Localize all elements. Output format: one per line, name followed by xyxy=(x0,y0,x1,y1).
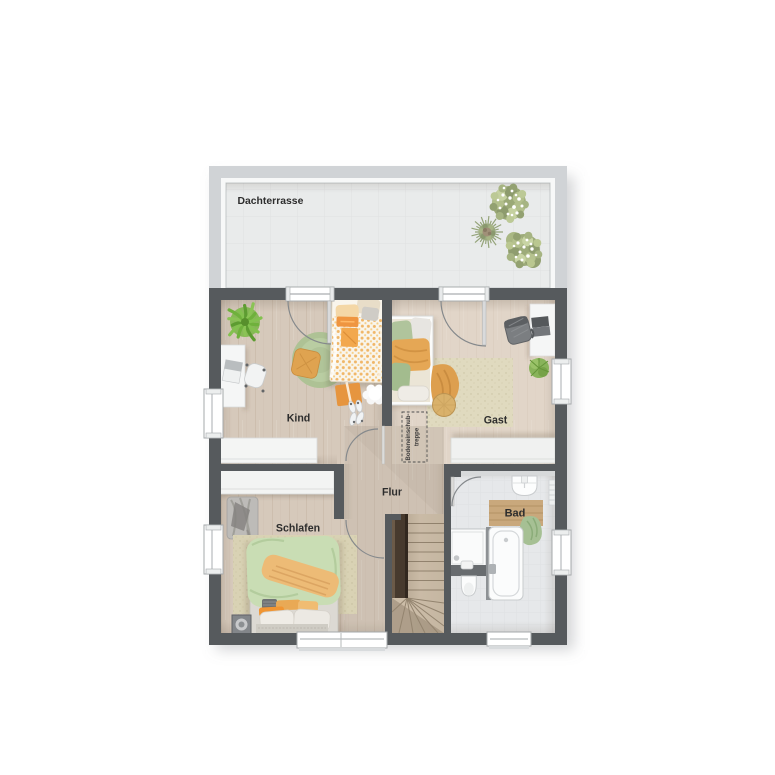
svg-text:Gast: Gast xyxy=(484,415,508,427)
svg-text:Kind: Kind xyxy=(287,413,311,425)
svg-text:Flur: Flur xyxy=(382,487,402,499)
svg-text:Bad: Bad xyxy=(505,508,526,520)
svg-text:Bodeneinschub-: Bodeneinschub- xyxy=(406,413,412,460)
svg-text:treppe: treppe xyxy=(415,427,421,446)
svg-text:Dachterrasse: Dachterrasse xyxy=(238,196,304,207)
svg-text:Schlafen: Schlafen xyxy=(276,523,320,535)
